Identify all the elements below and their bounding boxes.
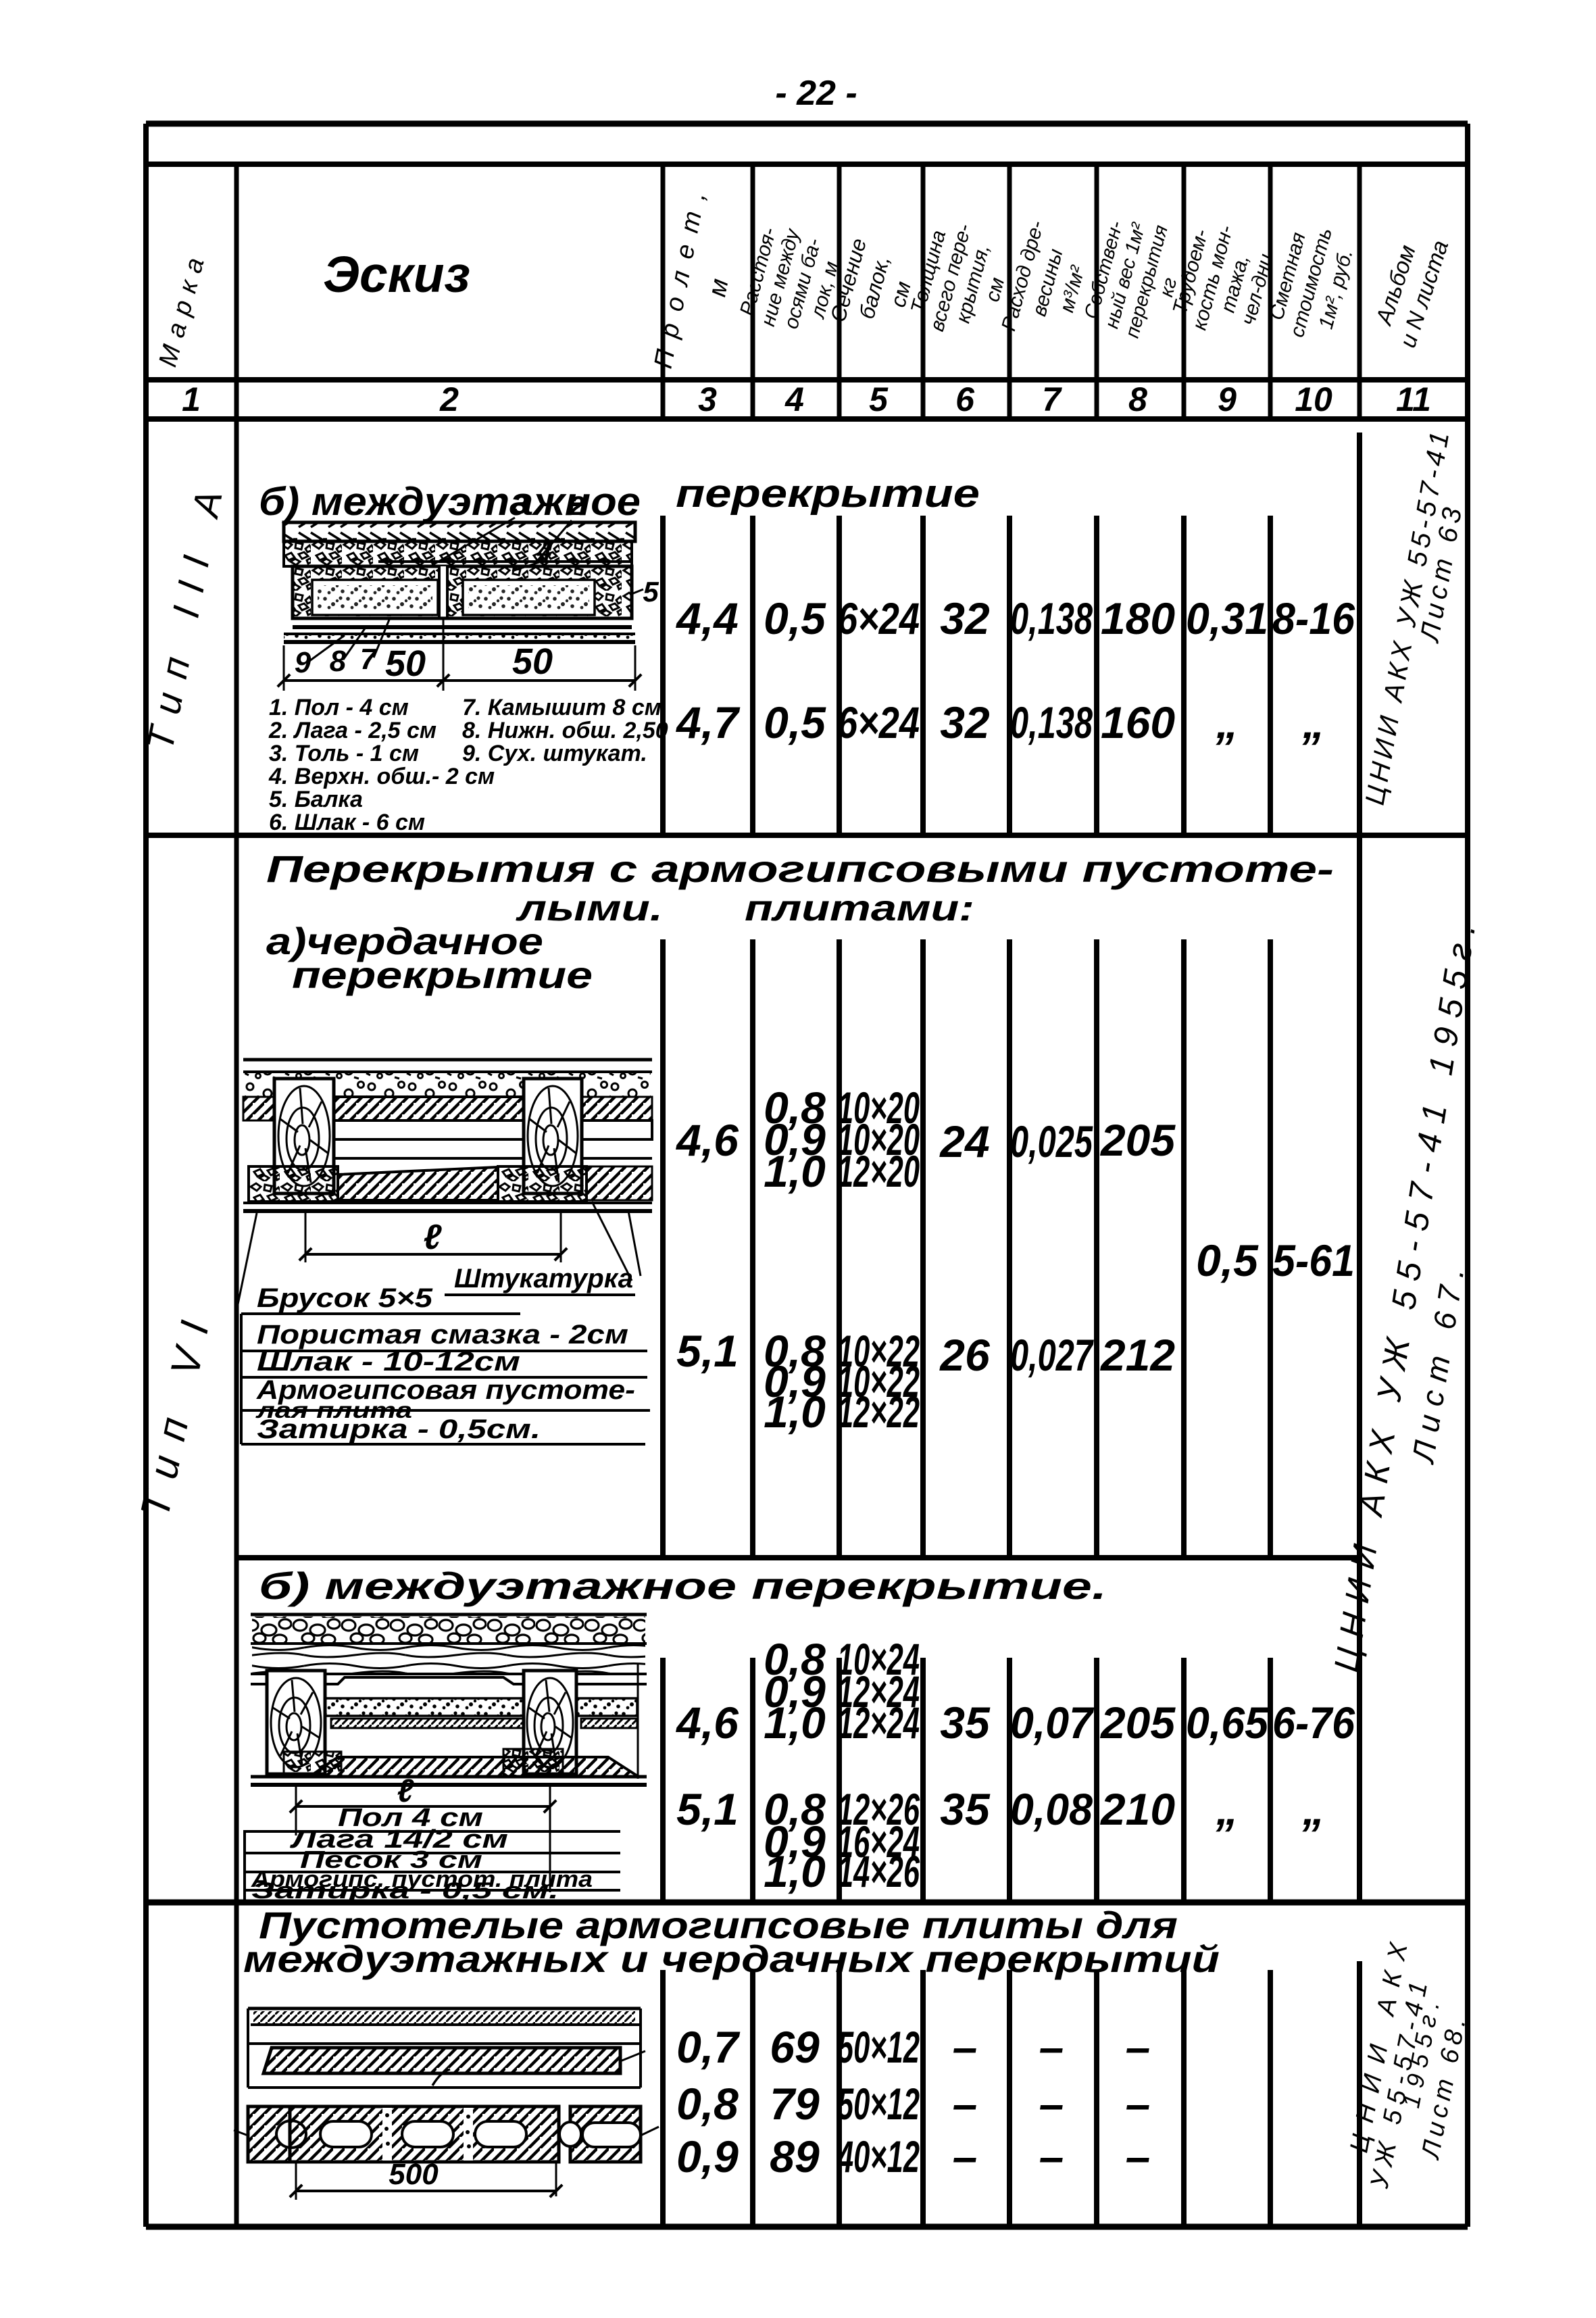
svg-text:плитами:: плитами: — [745, 888, 974, 929]
svg-text:0,027: 0,027 — [1010, 1330, 1094, 1380]
svg-text:4,6: 4,6 — [675, 1115, 739, 1165]
svg-text:Пористая смазка - 2см: Пористая смазка - 2см — [257, 1320, 628, 1350]
svg-text:4,7: 4,7 — [675, 697, 741, 747]
svg-text:14×26: 14×26 — [837, 1846, 920, 1896]
svg-text:69: 69 — [770, 2022, 820, 2072]
svg-text:24: 24 — [939, 1116, 989, 1166]
svg-text:160: 160 — [1101, 697, 1175, 747]
svg-text:50: 50 — [385, 643, 426, 684]
svg-text:0,5: 0,5 — [1196, 1235, 1259, 1285]
svg-text:0,025: 0,025 — [1010, 1116, 1093, 1166]
svg-text:„: „ — [1216, 697, 1239, 747]
svg-text:7. Камышит 8 см: 7. Камышит 8 см — [462, 695, 662, 720]
svg-text:500: 500 — [389, 2158, 439, 2191]
svg-text:–: – — [1126, 2131, 1151, 2181]
svg-text:Затирка - 0,5см.: Затирка - 0,5см. — [257, 1414, 541, 1444]
svg-text:1: 1 — [182, 380, 201, 418]
svg-text:5-61: 5-61 — [1272, 1235, 1355, 1285]
svg-text:11: 11 — [1396, 380, 1431, 418]
svg-text:0,5: 0,5 — [764, 697, 826, 747]
svg-text:4: 4 — [784, 380, 804, 418]
svg-text:–: – — [953, 2079, 978, 2129]
svg-text:35: 35 — [940, 1698, 991, 1748]
svg-text:Штукатурка: Штукатурка — [454, 1264, 633, 1293]
svg-text:–: – — [1039, 2079, 1064, 2129]
svg-text:50×12: 50×12 — [837, 2079, 920, 2129]
svg-text:перекрытие: перекрытие — [292, 954, 593, 996]
svg-text:4,4: 4,4 — [675, 593, 739, 643]
svg-text:212: 212 — [1099, 1330, 1175, 1380]
svg-text:12×24: 12×24 — [837, 1698, 920, 1748]
svg-text:1,0: 1,0 — [764, 1387, 826, 1437]
svg-text:0,65: 0,65 — [1186, 1698, 1269, 1748]
svg-text:7: 7 — [1042, 380, 1062, 418]
svg-text:8: 8 — [1128, 380, 1147, 418]
svg-text:Шлак - 10-12см: Шлак - 10-12см — [257, 1347, 520, 1377]
svg-text:Брусок 5×5: Брусок 5×5 — [257, 1283, 433, 1313]
svg-text:7: 7 — [360, 643, 378, 676]
svg-text:0,138: 0,138 — [1010, 593, 1093, 643]
svg-text:12×22: 12×22 — [837, 1387, 920, 1437]
svg-text:205: 205 — [1099, 1115, 1176, 1165]
svg-text:205: 205 — [1099, 1698, 1176, 1748]
svg-text:1. Пол - 4 см: 1. Пол - 4 см — [269, 695, 409, 720]
svg-text:6: 6 — [955, 380, 975, 418]
svg-text:0,07: 0,07 — [1010, 1698, 1095, 1748]
svg-text:6-76: 6-76 — [1272, 1698, 1355, 1748]
svg-text:0,9: 0,9 — [676, 2131, 739, 2181]
svg-text:–: – — [1039, 2131, 1064, 2181]
svg-text:Эскиз: Эскиз — [323, 246, 470, 303]
svg-text:40×12: 40×12 — [837, 2131, 920, 2181]
svg-text:4: 4 — [537, 537, 551, 566]
svg-text:3. Толь - 1 см: 3. Толь - 1 см — [269, 741, 419, 766]
svg-text:Перекрытия с армогипсовыми: Перекрытия с армогипсовыми пустоте- — [266, 847, 1334, 890]
svg-text:0,7: 0,7 — [676, 2022, 741, 2072]
svg-text:35: 35 — [940, 1784, 991, 1834]
svg-text:5. Балка: 5. Балка — [269, 787, 363, 812]
svg-text:2: 2 — [569, 491, 584, 521]
svg-text:50: 50 — [512, 641, 553, 682]
svg-text:9: 9 — [1218, 380, 1237, 418]
svg-text:б) междуэтажное перекрытие.: б) междуэтажное перекрытие. — [259, 1564, 1107, 1607]
svg-text:0,5: 0,5 — [764, 593, 826, 643]
svg-text:8-16: 8-16 — [1272, 593, 1355, 643]
svg-text:- 22 -: - 22 - — [775, 74, 857, 113]
svg-text:–: – — [1126, 2079, 1151, 2129]
svg-text:1,0: 1,0 — [764, 1846, 826, 1896]
svg-text:2. Лага - 2,5 см: 2. Лага - 2,5 см — [268, 718, 437, 743]
svg-text:8. Нижн. обш. 2,50: 8. Нижн. обш. 2,50 — [462, 718, 668, 743]
svg-text:6. Шлак - 6 см: 6. Шлак - 6 см — [269, 810, 425, 835]
svg-text:3: 3 — [513, 490, 528, 520]
svg-text:„: „ — [1216, 1784, 1239, 1834]
svg-text:1,0: 1,0 — [764, 1698, 826, 1748]
svg-text:„: „ — [1302, 697, 1325, 747]
svg-text:5,1: 5,1 — [676, 1326, 739, 1376]
svg-text:89: 89 — [770, 2131, 820, 2181]
svg-text:26: 26 — [939, 1330, 991, 1380]
svg-text:180: 180 — [1101, 593, 1175, 643]
svg-text:9. Сух. штукат.: 9. Сух. штукат. — [462, 741, 647, 766]
svg-text:–: – — [953, 2131, 978, 2181]
svg-text:10: 10 — [1295, 380, 1332, 418]
svg-text:2: 2 — [439, 380, 459, 418]
svg-text:5: 5 — [643, 576, 659, 608]
svg-text:6×24: 6×24 — [837, 697, 920, 747]
svg-text:1,0: 1,0 — [764, 1146, 826, 1196]
svg-text:50×12: 50×12 — [837, 2022, 920, 2072]
svg-text:0,138: 0,138 — [1010, 697, 1093, 747]
svg-text:0,08: 0,08 — [1010, 1784, 1093, 1834]
svg-text:79: 79 — [770, 2079, 820, 2129]
svg-text:210: 210 — [1099, 1784, 1175, 1834]
svg-text:3: 3 — [698, 380, 717, 418]
svg-text:5,1: 5,1 — [676, 1784, 739, 1834]
svg-text:–: – — [1126, 2022, 1151, 2072]
svg-text:„: „ — [1302, 1784, 1325, 1834]
svg-text:9: 9 — [295, 646, 311, 679]
svg-text:6×24: 6×24 — [837, 593, 920, 643]
svg-text:4,6: 4,6 — [675, 1698, 739, 1748]
svg-text:32: 32 — [940, 593, 990, 643]
svg-text:–: – — [1039, 2022, 1064, 2072]
svg-text:–: – — [953, 2022, 978, 2072]
svg-text:12×20: 12×20 — [837, 1146, 920, 1196]
svg-text:0,31: 0,31 — [1186, 593, 1268, 643]
svg-text:8: 8 — [330, 645, 347, 678]
svg-text:перекрытие: перекрытие — [676, 472, 980, 516]
svg-text:Затирка - 0,5 см.: Затирка - 0,5 см. — [251, 1878, 559, 1904]
svg-text:5: 5 — [869, 380, 889, 418]
svg-text:4. Верхн. обш.- 2 см: 4. Верхн. обш.- 2 см — [268, 764, 495, 789]
svg-text:ℓ: ℓ — [424, 1218, 443, 1257]
svg-text:междуэтажных и чердачных: междуэтажных и чердачных перекрытий — [243, 1938, 1220, 1980]
svg-text:0,8: 0,8 — [676, 2079, 739, 2129]
svg-text:32: 32 — [940, 697, 990, 747]
